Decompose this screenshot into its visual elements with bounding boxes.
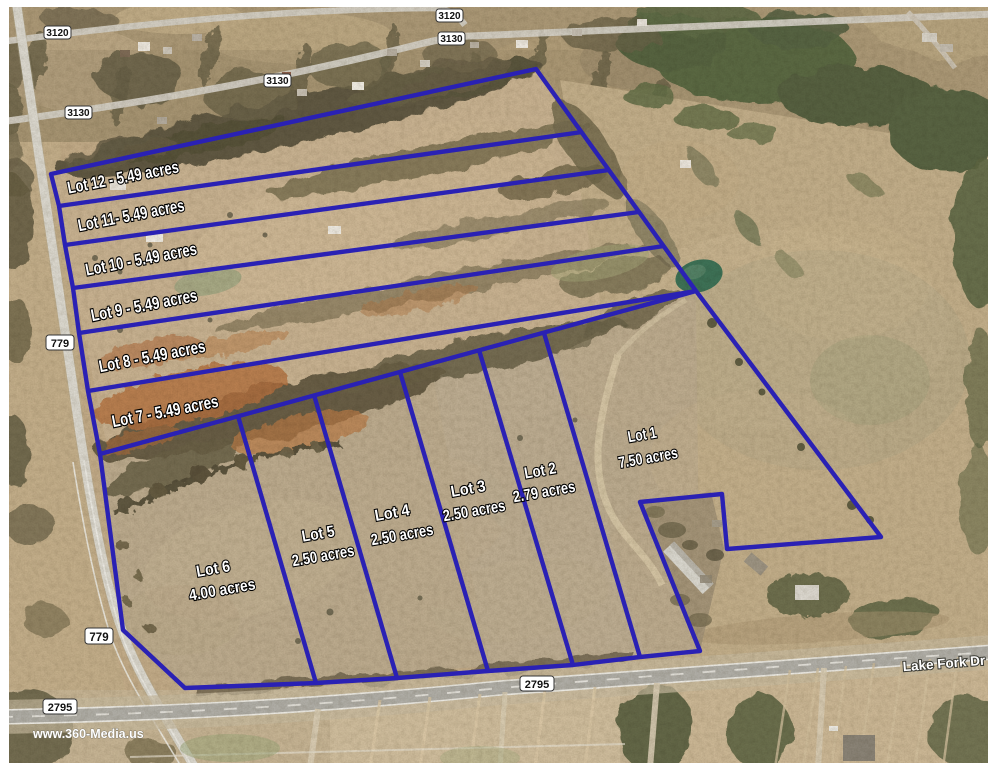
svg-text:3130: 3130 [67,108,90,119]
svg-text:779: 779 [89,632,108,644]
svg-text:3120: 3120 [46,28,69,39]
svg-text:www.360-Media.us: www.360-Media.us [32,727,144,741]
svg-text:779: 779 [51,338,69,350]
svg-text:3120: 3120 [438,11,461,22]
svg-text:3130: 3130 [440,34,463,45]
svg-text:2795: 2795 [525,679,549,691]
svg-text:3130: 3130 [266,76,289,87]
svg-text:2795: 2795 [48,702,72,714]
